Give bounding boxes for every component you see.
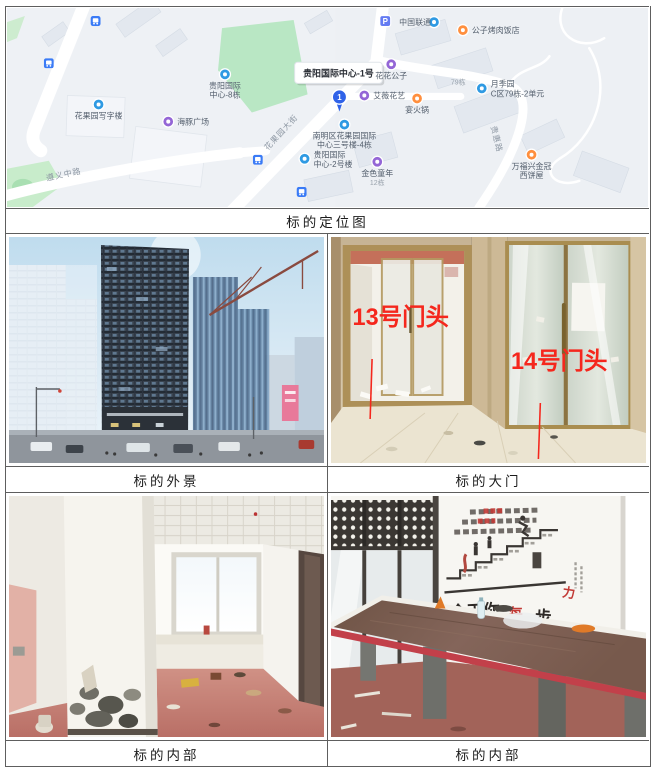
- parking-icon: P: [380, 16, 391, 27]
- pink-signage: [282, 385, 299, 421]
- orange-object: [572, 625, 595, 633]
- poi-florist-label: 艾薇花艺: [373, 90, 405, 100]
- caption-interior-left: 标的内部: [5, 740, 327, 766]
- annotation-door13: 13号门头: [353, 303, 450, 331]
- wall-fixture: [13, 647, 25, 656]
- street: [9, 433, 324, 463]
- photo-interior-left: [5, 492, 327, 740]
- poi-dolphin-label: 海豚广场: [177, 117, 209, 127]
- caption-interior-right: 标的内部: [327, 740, 649, 766]
- bright-window: [624, 496, 646, 647]
- poi-huahua: [386, 59, 397, 70]
- caption-exterior: 标的外景: [5, 466, 327, 492]
- poi-nanming-label2: 中心三号楼-4栋: [317, 140, 372, 150]
- caption-map: 标的定位图: [5, 208, 649, 233]
- photo-gate: 13号门头 14号门头: [327, 233, 649, 466]
- doorway-14: [505, 241, 632, 429]
- photo-interior-right: 力 今天你 每 步: [327, 492, 649, 740]
- poi-nanming: [339, 119, 350, 130]
- tower-podium: [102, 407, 188, 433]
- svg-text:1: 1: [337, 93, 342, 102]
- poi-office: [93, 99, 104, 110]
- map-main-label: 贵阳国际中心-1号: [295, 62, 385, 85]
- poi-intl2-label2: 中心-2号楼: [314, 159, 353, 169]
- poi-yueji: [476, 83, 487, 94]
- poi-golden: [372, 156, 383, 167]
- gate-photo: 13号门头 14号门头: [331, 237, 646, 463]
- door-handle: [562, 303, 566, 355]
- bus-icon: [297, 187, 307, 197]
- bus-icon: [44, 58, 54, 68]
- poi-office-label: 花果园写字楼: [75, 111, 123, 121]
- poi-hotpot-label: 宴火锅: [405, 104, 429, 114]
- poi-bakery-label2: 西饼屋: [520, 170, 544, 180]
- poi-unicom-label: 中国联通: [399, 17, 431, 27]
- stained-column: [64, 496, 158, 737]
- poi-yueji-label2: C区79栋-2单元: [491, 88, 545, 98]
- poi-florist: [359, 90, 370, 101]
- photo-exterior: [5, 233, 327, 466]
- plastic-bag: [503, 612, 542, 628]
- block79-label: 79栋: [451, 77, 466, 86]
- photo-table: 遵义中路 花果园大街 贵惠路 P: [5, 6, 651, 767]
- poi-dolphin: [163, 116, 174, 127]
- map-figure: 遵义中路 花果园大街 贵惠路 P: [5, 6, 649, 208]
- decal-power-char: 力: [561, 584, 576, 601]
- poi-bbq-label: 公子烤肉饭店: [472, 25, 520, 35]
- poi-huahua-label: 花花公子: [375, 70, 407, 80]
- red-cup: [204, 626, 210, 635]
- poi-intl2: [299, 153, 310, 164]
- water-bottle: [478, 600, 485, 618]
- poi-nanming-label1: 南明区花果园国际: [313, 131, 377, 141]
- annotation-door14: 14号门头: [511, 347, 608, 375]
- document-sheet: 遵义中路 花果园大街 贵惠路 P: [0, 0, 656, 768]
- poi-intl8-label2: 中心-8栋: [209, 89, 240, 99]
- caption-gate: 标的大门: [327, 466, 649, 492]
- svg-text:P: P: [383, 17, 389, 26]
- poi-bakery: [526, 149, 537, 160]
- poi-intl8: [220, 69, 231, 80]
- interior-photo-right: 力 今天你 每 步: [331, 496, 646, 737]
- bus-icon: [91, 16, 101, 26]
- sprinkler: [254, 512, 258, 516]
- block12-label: 12栋: [370, 178, 385, 187]
- poi-yueji-label1: 月季园: [491, 78, 515, 88]
- poi-golden-label: 金色童年: [361, 168, 393, 178]
- poi-hotpot: [412, 93, 423, 104]
- lattice-screens: [331, 500, 437, 550]
- poi-bakery-label1: 万福兴金冠: [512, 161, 552, 171]
- svg-text:贵阳国际中心-1号: 贵阳国际中心-1号: [303, 67, 374, 78]
- poi-intl2-label1: 贵阳国际: [314, 150, 346, 160]
- location-map: 遵义中路 花果园大街 贵惠路 P: [7, 8, 648, 207]
- interior-photo-left: [9, 496, 324, 737]
- poi-intl8-label1: 贵阳国际: [209, 80, 241, 90]
- dark-spot: [493, 605, 513, 612]
- bus-icon: [253, 155, 263, 165]
- traffic-light: [58, 389, 62, 393]
- window-sill: [146, 635, 263, 645]
- poi-bbq: [457, 25, 468, 36]
- window-glass: [176, 557, 256, 631]
- exterior-photo: [9, 237, 324, 463]
- glass-tower-2: [236, 309, 269, 445]
